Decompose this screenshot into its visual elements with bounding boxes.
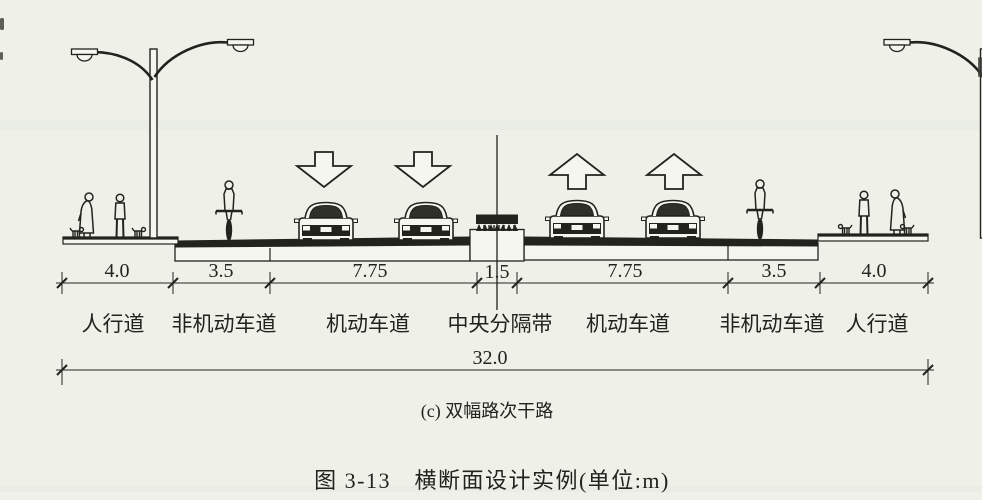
segment-width-5: 3.5 [762,260,787,282]
segment-label-2: 机动车道 [326,312,410,336]
segment-label-1: 非机动车道 [172,312,277,336]
segment-label-4: 机动车道 [586,312,670,336]
segment-width-2: 7.75 [353,260,388,282]
road-cross-section-figure: 4.0 3.5 7.75 1.5 7.75 3.5 4.0 人行道 非机动车道 … [0,0,982,500]
segment-label-5: 非机动车道 [720,312,825,336]
segment-label-3: 中央分隔带 [448,312,553,336]
segment-width-6: 4.0 [862,260,887,282]
scanned-book-page: 4.0 3.5 7.75 1.5 7.75 3.5 4.0 人行道 非机动车道 … [0,0,982,500]
segment-width-1: 3.5 [209,260,234,282]
segment-label-0: 人行道 [82,312,145,336]
segment-width-4: 7.75 [608,260,643,282]
sidewalk-right [818,234,928,241]
panel-caption: (c) 双幅路次干路 [421,401,553,422]
scan-streak [0,120,982,130]
sidewalk-left [63,237,178,244]
segment-width-0: 4.0 [105,260,130,282]
figure-title: 图 3-13 横断面设计实例(单位:m) [314,468,670,493]
total-width: 32.0 [473,347,508,369]
segment-label-6: 人行道 [846,312,909,336]
segment-width-3: 1.5 [485,261,510,283]
